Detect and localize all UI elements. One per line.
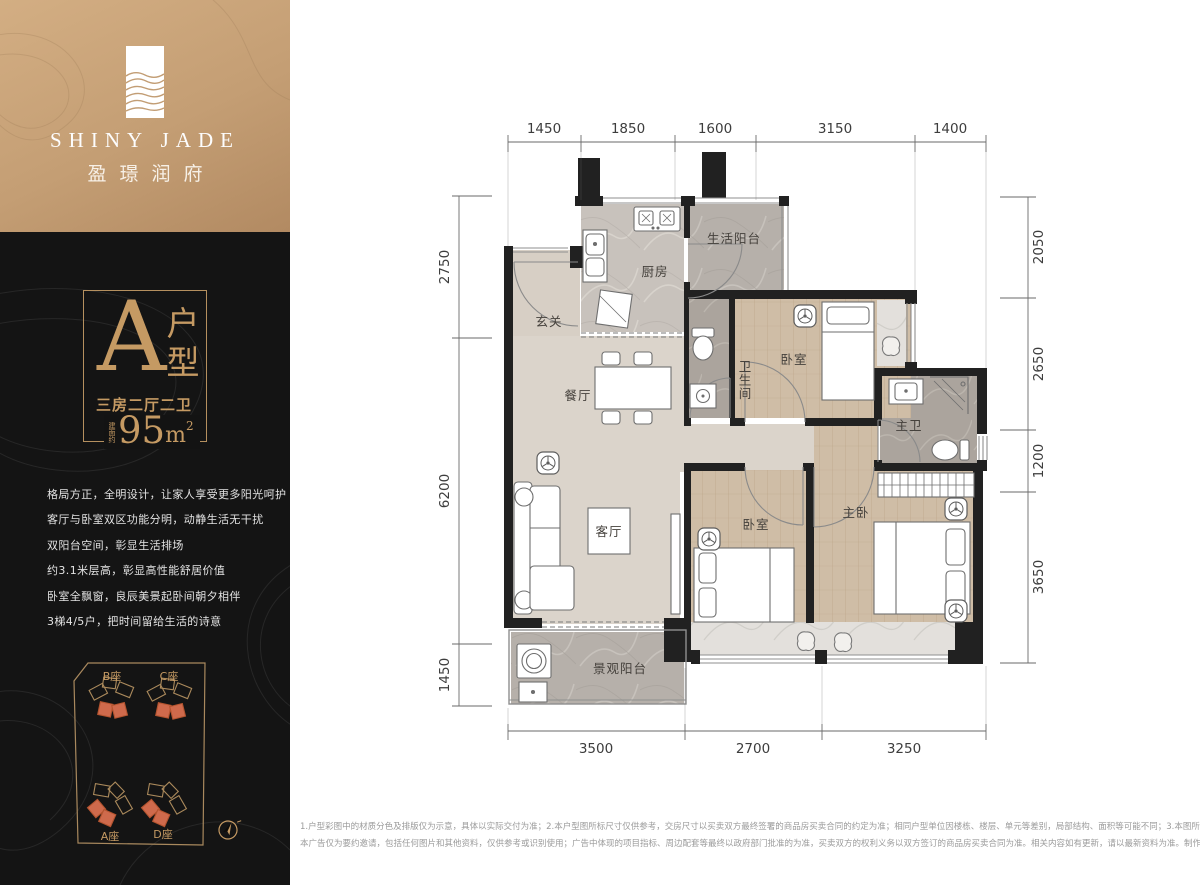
dim-right-0: 2050	[1031, 230, 1047, 264]
room-label-service-balcony: 生活阳台	[707, 231, 761, 246]
dim-right-3: 3650	[1031, 560, 1047, 594]
dim-bottom-1: 2700	[736, 741, 770, 757]
plant-icon	[797, 632, 814, 651]
site-plan: B座 C座 A座 D座	[58, 652, 250, 857]
dim-top-1: 1850	[611, 121, 645, 137]
bed-icon	[694, 548, 794, 622]
building-c-icon	[147, 678, 192, 719]
dim-right-2: 1200	[1031, 444, 1047, 478]
building-a-icon	[78, 773, 138, 833]
room-label-bathroom: 卫生间	[737, 360, 752, 401]
toilet-icon	[692, 328, 714, 360]
selling-points: 格局方正，全明设计，让家人享受更多阳光呵护 客厅与卧室双区功能分明，动静生活无干…	[47, 482, 286, 634]
vanity-icon	[889, 379, 923, 404]
room-label-dining: 餐厅	[564, 388, 591, 403]
building-b-icon	[89, 677, 134, 718]
wardrobe-icon	[878, 473, 974, 497]
poster-page: SHINY JADE 盈璟润府 A 户型 三房二厅二卫 建面约 95 m 2 格…	[0, 0, 1200, 885]
north-compass-icon	[216, 814, 242, 842]
building-d-label: D座	[153, 827, 172, 841]
selling-point-line: 卧室全飘窗，良辰美景起卧间朝夕相伴	[47, 584, 286, 609]
left-panel: SHINY JADE 盈璟润府 A 户型 三房二厅二卫 建面约 95 m 2 格…	[0, 0, 290, 885]
room-label-living: 客厅	[595, 524, 622, 539]
selling-point-line: 格局方正，全明设计，让家人享受更多阳光呵护	[47, 482, 286, 507]
dim-left-0: 2750	[437, 250, 453, 284]
building-a-label: A座	[101, 829, 120, 843]
floor-fills	[511, 204, 977, 704]
room-label-entry: 玄关	[535, 314, 562, 329]
laundry-sink-icon	[519, 682, 547, 702]
bed-icon	[822, 302, 874, 400]
room-label-bedroom-mid: 卧室	[742, 517, 769, 532]
dim-top-2: 1600	[698, 121, 732, 137]
selling-point-line: 约3.1米层高，彰显高性能舒居价值	[47, 558, 286, 583]
selling-point-line: 3梯4/5户，把时间留给生活的诗意	[47, 609, 286, 634]
brand-name-en: SHINY JADE	[0, 128, 290, 153]
floor-plan: 玄关 厨房 生活阳台 餐厅 卫生间 卧室 主卫 客厅 卧室 主卧 景观阳台	[430, 100, 1090, 770]
kitchen-cabinet-icon	[596, 290, 632, 328]
room-label-master-bedroom: 主卧	[842, 505, 869, 520]
dim-left-2: 1450	[437, 658, 453, 692]
kitchen-sink-icon	[583, 230, 607, 282]
dim-bottom-2: 3250	[887, 741, 921, 757]
site-boundary	[74, 663, 205, 845]
area-superscript: 2	[186, 419, 194, 433]
bath-sink-icon	[690, 384, 716, 408]
building-d-icon	[132, 773, 192, 833]
stove-icon	[634, 207, 680, 231]
disclaimer-line-2: 本广告仅为要约邀请，包括任何图片和其他资料，仅供参考或识别使用；广告中体现的项目…	[300, 836, 1195, 853]
disclaimer-line-1: 1.户型彩图中的材质分色及排版仅为示意，具体以实际交付为准；2.本户型图所标尺寸…	[300, 819, 1195, 836]
selling-point-line: 双阳台空间，彰显生活排场	[47, 533, 286, 558]
room-label-bedroom-top: 卧室	[780, 352, 807, 367]
plant-icon	[882, 337, 899, 356]
area-unit: m	[165, 425, 186, 447]
toilet-icon	[932, 440, 969, 460]
brand-logo-icon	[126, 46, 164, 118]
dim-top-4: 1400	[933, 121, 967, 137]
room-label-view-balcony: 景观阳台	[593, 661, 647, 676]
area-number: 95	[118, 415, 165, 447]
room-label-master-bathroom: 主卫	[895, 418, 922, 433]
unit-type-suffix: 户型	[156, 306, 204, 384]
dim-top-3: 3150	[818, 121, 852, 137]
disclaimer: 1.户型彩图中的材质分色及排版仅为示意，具体以实际交付为准；2.本户型图所标尺寸…	[300, 819, 1195, 852]
dim-bottom-0: 3500	[579, 741, 613, 757]
dim-top-0: 1450	[527, 121, 561, 137]
dim-left-1: 6200	[437, 474, 453, 508]
area-prefix: 建面约	[108, 422, 116, 443]
tv-console-icon	[671, 514, 680, 614]
dim-right-1: 2650	[1031, 347, 1047, 381]
building-b-label: B座	[103, 669, 122, 683]
selling-point-line: 客厅与卧室双区功能分明，动静生活无干扰	[47, 507, 286, 532]
washing-machine-icon	[517, 644, 551, 678]
building-c-label: C座	[160, 669, 179, 683]
brand-name-cn: 盈璟润府	[0, 159, 290, 186]
plant-icon	[834, 633, 851, 652]
unit-area: 建面约 95 m 2	[104, 415, 200, 449]
room-label-kitchen: 厨房	[641, 264, 668, 279]
